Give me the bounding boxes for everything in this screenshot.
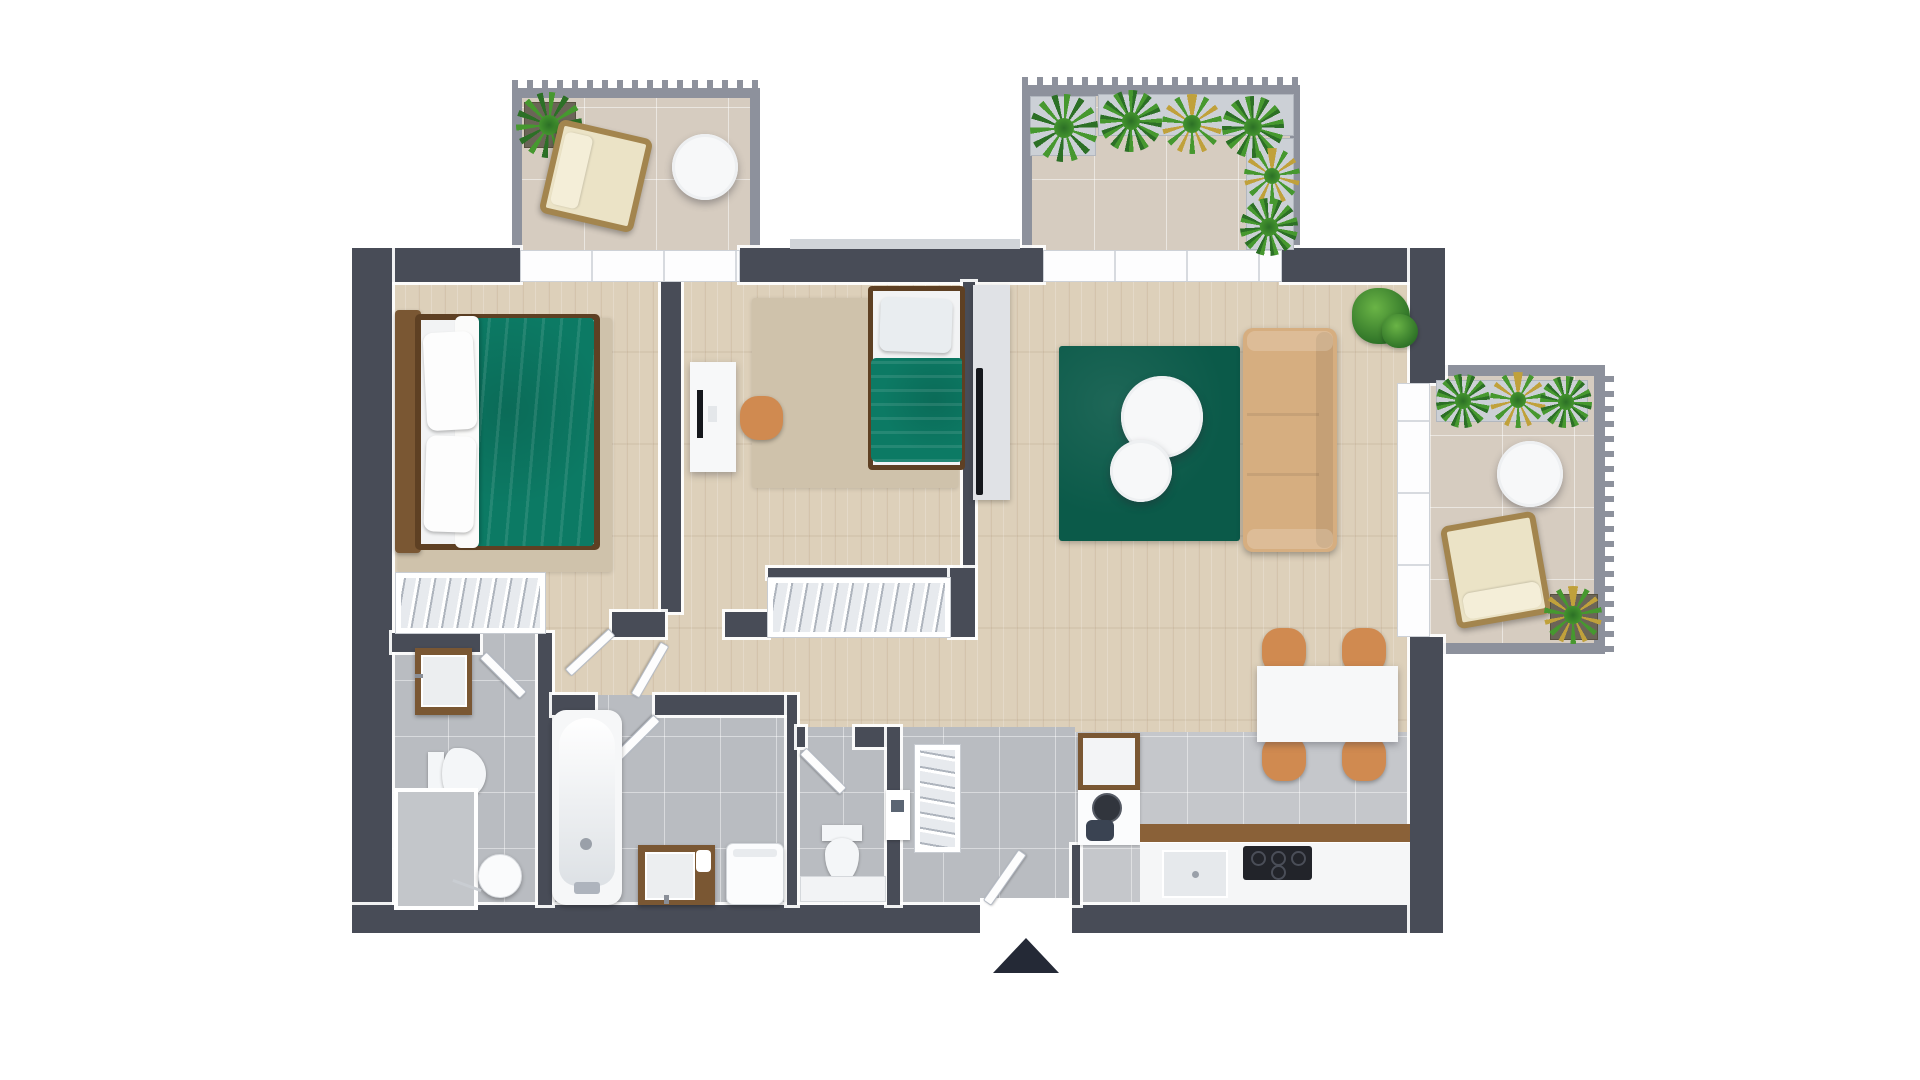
bathtub-faucet [574, 882, 600, 894]
sofa-seam [1247, 473, 1319, 476]
wc1-vanity [415, 648, 472, 715]
terrace-palm [1030, 94, 1098, 162]
burner [1271, 851, 1286, 866]
balcony2-window-door [1397, 383, 1430, 637]
bath-vanity [638, 845, 715, 905]
wc1-faucet [415, 674, 423, 678]
wall-right-lower [1410, 637, 1443, 933]
entry-wardrobe [915, 745, 960, 852]
single-bed-blanket [871, 358, 962, 462]
sofa-arm-top [1247, 331, 1333, 351]
coffee-table-small [1110, 440, 1172, 502]
wall-closet-side [950, 568, 975, 637]
bath-sink [645, 852, 695, 900]
bed-pillow [423, 435, 476, 533]
wall-wc2-top-b [855, 727, 887, 747]
desk-monitor [697, 390, 703, 438]
entrance-arrow [993, 938, 1059, 973]
bathtub [552, 710, 622, 905]
wall-left [352, 248, 392, 933]
sofa-backrest [1316, 332, 1333, 548]
burner [1251, 851, 1266, 866]
balcony2-lounge-chair [1440, 510, 1553, 629]
burner [1271, 865, 1286, 880]
dining-table [1257, 666, 1398, 742]
washer-lid [733, 849, 777, 857]
kitchen-sink [1162, 850, 1228, 898]
balcony2-palm [1544, 586, 1602, 644]
desk [690, 362, 736, 472]
single-bed-pillow [879, 297, 953, 353]
desk-keyboard [708, 406, 717, 422]
wall-bed2-bottom [725, 612, 768, 637]
balcony2-table [1497, 441, 1563, 507]
wall-bottom-right [1072, 905, 1443, 933]
shelf-item [891, 800, 904, 812]
balcony2-palm-yellow [1490, 372, 1546, 428]
terrace-palm-yellow [1162, 94, 1222, 154]
kettle [1092, 793, 1122, 823]
wc1-alcove [394, 788, 478, 910]
balcony2-railing [1605, 368, 1614, 652]
pot [1086, 820, 1114, 841]
bath-towels [696, 850, 711, 872]
hall-coat-wardrobe [768, 578, 950, 637]
terrace-sliding-door [1043, 250, 1282, 282]
balcony2-wall-bottom [1430, 643, 1605, 654]
balcony1-wall-right [750, 88, 760, 252]
lounge-pillow [1462, 581, 1543, 620]
bed-pillow [422, 331, 477, 431]
sofa-seam [1247, 413, 1319, 416]
wall-wc2-top-a [797, 727, 805, 747]
wall-wc1-right [538, 633, 552, 905]
wall-bed1-bottom [612, 612, 665, 637]
bed-duvet [470, 318, 594, 546]
wall-top-middle [740, 248, 1043, 282]
wall-bath-wc2 [787, 695, 797, 905]
counter-back-edge [1140, 824, 1410, 842]
sofa [1243, 328, 1337, 552]
wall-bed1-bed2 [661, 282, 681, 612]
kitchen-tall-cabinet [1078, 733, 1140, 790]
wc1-round-stand [478, 854, 522, 898]
wall-entry-kitchen-stub [1072, 845, 1080, 905]
double-bed [395, 308, 600, 555]
wall-bath-top-b [655, 695, 787, 715]
terrace-palm-yellow [1244, 148, 1300, 204]
balcony1-sliding-door [520, 250, 740, 282]
bath-faucet [664, 895, 669, 904]
entrance-threshold [980, 898, 1072, 930]
wall-shelf [886, 790, 910, 840]
living-plant-bush-small [1382, 314, 1418, 348]
desk-stool [740, 396, 783, 440]
balcony1-table [672, 134, 738, 200]
bathtub-drain [580, 838, 592, 850]
floor-plan [0, 0, 1920, 1080]
kitchen-cabinet-lower [1078, 790, 1140, 845]
wc2-radiator-bench [800, 876, 886, 902]
wall-closet-back [768, 568, 950, 578]
single-bed [868, 286, 965, 470]
cabinet-top [1083, 738, 1135, 785]
burner [1291, 851, 1306, 866]
cooktop [1243, 846, 1312, 880]
sofa-arm-bottom [1247, 529, 1333, 549]
tv [976, 368, 983, 495]
lounge-pillow [550, 131, 594, 209]
bathtub-basin [559, 718, 615, 886]
washing-machine [726, 843, 784, 905]
bedroom1-wardrobe [396, 573, 545, 633]
sink-drain [1192, 871, 1199, 878]
bedroom2-window-sill [790, 239, 1020, 249]
wall-right-upper [1410, 248, 1445, 383]
wc1-sink [421, 655, 467, 707]
